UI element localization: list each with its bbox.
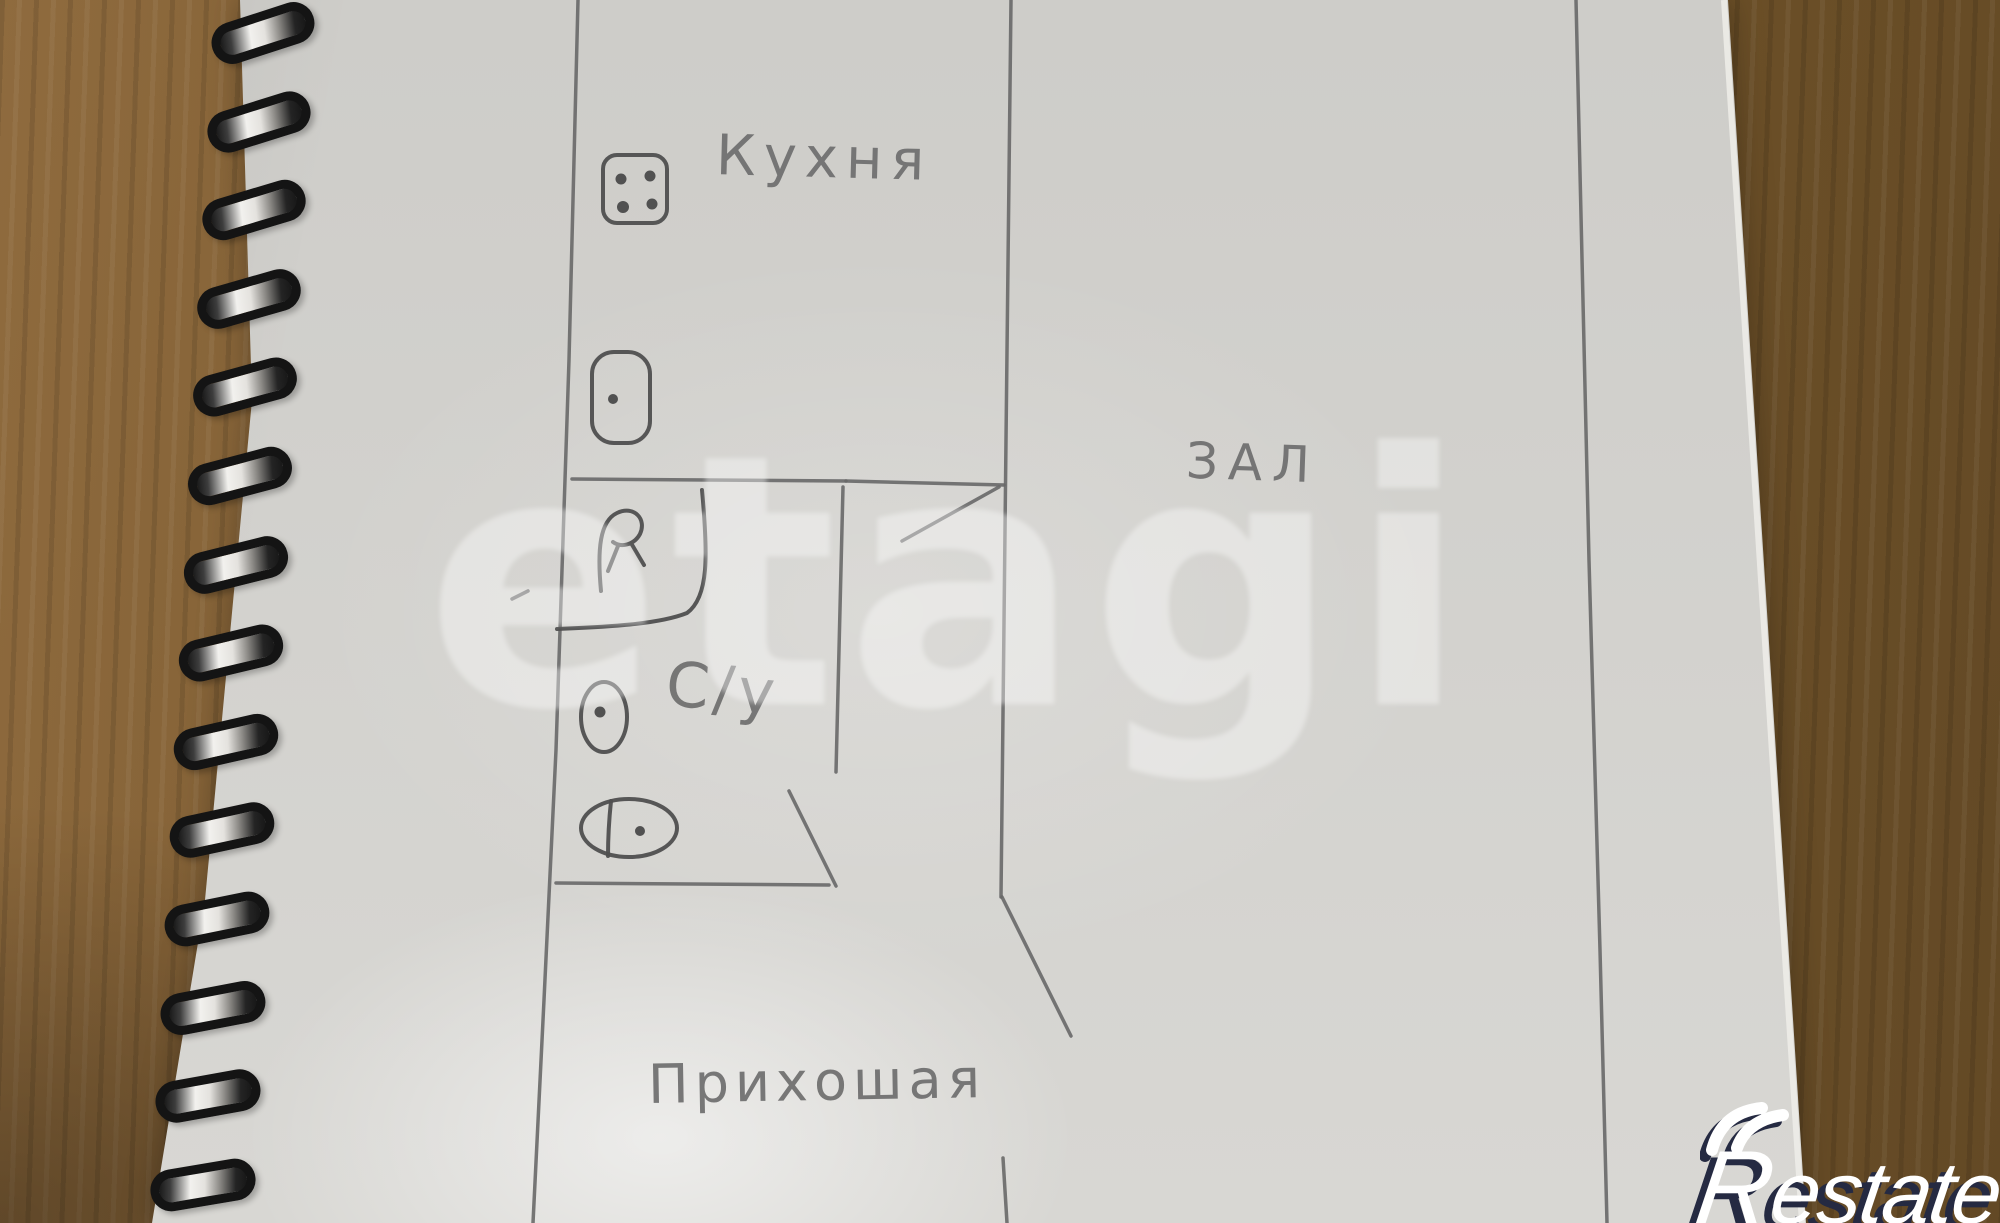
page-edge: [1724, 0, 1802, 1223]
door-leaf-hall: [1002, 897, 1071, 1036]
wall-center: [1001, 0, 1011, 897]
wall-kitchen-bottom-faint: [846, 481, 1004, 485]
hall-label: ЗАЛ: [1185, 432, 1321, 495]
washbasin-icon: [581, 799, 677, 857]
floor-plan-sketch: [0, 0, 2000, 1223]
logo-letter-r: R: [1690, 1130, 1781, 1223]
notebook-photo: Кухня ЗАЛ С/у Прихошая etagi Restate: [0, 0, 2000, 1223]
restate-logo: Restate: [1686, 1100, 2000, 1223]
door-leaf-bathroom: [789, 791, 836, 886]
kitchen-sink-icon: [592, 352, 650, 443]
logo-rest: estate: [1765, 1143, 2000, 1223]
wall-right: [1576, 0, 1607, 1223]
pencil-smudge: [512, 591, 528, 599]
wall-bathroom-bottom: [556, 883, 829, 885]
hallway-label: Прихошая: [647, 1047, 986, 1116]
wall-bathroom-top: [572, 479, 846, 481]
wall-center-lower: [1003, 1158, 1007, 1223]
toilet-icon: [581, 682, 627, 752]
door-leaf-kitchen: [902, 487, 999, 541]
kitchen-label: Кухня: [715, 123, 933, 194]
stove-icon: [603, 155, 667, 223]
wall-bathroom-right: [836, 487, 843, 772]
wall-left: [533, 0, 578, 1223]
bathroom-label: С/у: [663, 647, 782, 730]
bathtub-icon: [557, 490, 706, 629]
logo-text: Restate: [1686, 1136, 2000, 1223]
